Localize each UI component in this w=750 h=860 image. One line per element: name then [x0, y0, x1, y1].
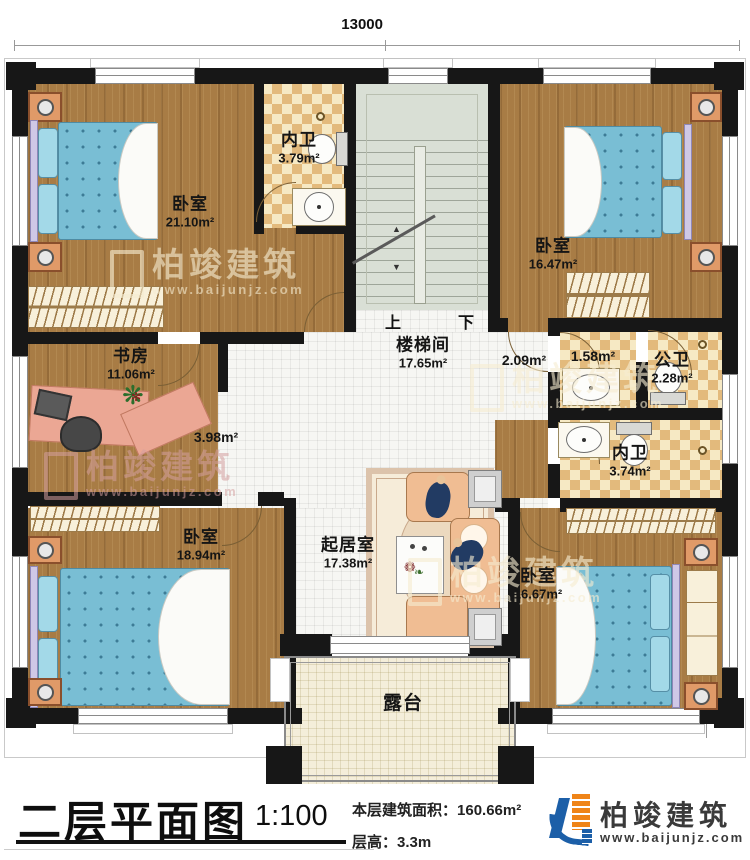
wall-segment [258, 492, 284, 506]
window [12, 556, 28, 668]
wall-segment [548, 464, 560, 498]
nightstand [28, 678, 62, 706]
bed-pillow [38, 576, 58, 632]
room-name: 书房 [107, 346, 155, 366]
floor-bedroom-br-entry [495, 420, 548, 498]
floor-height-text: 层高：3.3m [352, 831, 431, 852]
area-label-bath-vestibule: 1.58m² [571, 348, 615, 364]
plant-flower: ✻ [131, 391, 141, 403]
wardrobe [566, 272, 650, 318]
terrace-post [266, 746, 302, 784]
room-area: 3.74m² [609, 463, 650, 478]
room-name: 卧室 [514, 566, 562, 586]
stair-arrow-down: ▼ [392, 262, 401, 272]
title-underline [16, 840, 346, 844]
door-stop [698, 446, 707, 455]
window [722, 374, 738, 464]
floor-area-label: 本层建筑面积： [352, 802, 457, 819]
room-area: 17.65m² [396, 355, 450, 370]
sink-basin [566, 426, 602, 453]
bed-pillow [662, 132, 682, 180]
toilet-tank [650, 392, 686, 405]
wall-segment [488, 84, 500, 332]
bed-headboard [30, 120, 38, 242]
brand-logo-icon [548, 790, 596, 852]
wall-segment [636, 362, 648, 408]
dimension-tick [739, 40, 740, 51]
title-thin-line [4, 849, 374, 850]
room-label-bedroom-tl: 卧室 21.10m² [166, 194, 214, 229]
window-sill [383, 58, 453, 68]
wall-segment [548, 318, 722, 332]
sink-basin [304, 192, 334, 222]
room-area: 16.47m² [529, 256, 577, 271]
window [12, 356, 28, 468]
floor-height-value: 3.3m [397, 834, 431, 851]
window [552, 708, 700, 724]
room-label-bedroom-br: 卧室 16.67m² [514, 566, 562, 601]
room-label-bedroom-bl: 卧室 18.94m² [177, 527, 225, 562]
window-sill [538, 58, 656, 68]
room-name: 露台 [383, 693, 423, 715]
nightstand [690, 92, 722, 122]
room-area: 21.10m² [166, 214, 214, 229]
bed-pillow [38, 184, 58, 234]
side-table [468, 608, 502, 646]
door-stop [698, 340, 707, 349]
table-dots [410, 544, 415, 549]
room-label-stair-hall: 楼梯间 17.65m² [396, 335, 450, 370]
wall-segment [200, 332, 304, 344]
corner-pier [714, 62, 744, 90]
room-area: 2.28m² [651, 370, 692, 385]
wall-segment [218, 332, 228, 392]
room-label-bath-top: 内卫 3.79m² [278, 130, 319, 165]
window [543, 68, 651, 84]
dimension-tick [14, 40, 15, 51]
wall-segment [254, 222, 262, 234]
wall-terrace-left [280, 634, 332, 656]
window [388, 68, 448, 84]
room-label-study: 书房 11.06m² [107, 346, 155, 381]
plan-scale: 1:100 [255, 800, 328, 833]
wall-segment [548, 332, 560, 336]
room-label-terrace: 露台 [383, 693, 423, 715]
wardrobe [566, 508, 716, 534]
bed-pillow [650, 636, 670, 692]
stair-arrow-up: ▲ [392, 224, 401, 234]
bed-headboard [684, 124, 692, 240]
window [78, 708, 228, 724]
room-area: 16.67m² [514, 586, 562, 601]
wall-segment [12, 492, 222, 506]
window-sill [547, 724, 705, 734]
dimension-line-top [14, 45, 740, 46]
bed-pillow [38, 128, 58, 178]
wardrobe [30, 506, 160, 532]
sliding-door [330, 636, 470, 654]
stair-down-label: 下 [458, 309, 474, 333]
wall-segment [500, 318, 508, 332]
nightstand [28, 536, 62, 564]
door-stop [316, 112, 325, 121]
room-area: 18.94m² [177, 547, 225, 562]
window [722, 556, 738, 668]
area-label-hall-right: 2.09m² [502, 352, 546, 368]
logo-block [582, 828, 592, 844]
bed-pillow [662, 186, 682, 234]
nightstand [28, 92, 62, 122]
terrace-post [498, 746, 534, 784]
floor-area-text: 本层建筑面积：160.66m² [352, 799, 521, 820]
brand-name: 柏竣建筑 [600, 794, 732, 834]
bedside-cabinet [686, 570, 718, 676]
room-area: 11.06m² [107, 366, 155, 381]
terrace-railing-inner [290, 662, 510, 776]
floor-plan-page: 13000 13200 [0, 0, 750, 860]
dimension-tick [385, 40, 386, 51]
dimension-width-label: 13000 [308, 16, 383, 33]
corner-pier [6, 62, 36, 90]
wardrobe [28, 286, 164, 328]
logo-tower [572, 792, 590, 830]
bed-pillow [650, 574, 670, 630]
room-label-living: 起居室 17.38m² [321, 535, 375, 570]
stair-up-label: 上 [385, 309, 401, 333]
area-label-hall-left: 3.98m² [194, 429, 238, 445]
room-label-bath-public: 公卫 2.28m² [651, 350, 692, 385]
window-sill [90, 58, 200, 68]
toilet-tank [336, 132, 348, 166]
room-name: 起居室 [321, 535, 375, 555]
room-name: 卧室 [529, 236, 577, 256]
table-flowers-leaf: ❧ [414, 566, 424, 578]
room-name: 内卫 [609, 443, 650, 463]
nightstand [690, 242, 722, 272]
table-dots [422, 546, 427, 551]
room-label-bath-inner: 内卫 3.74m² [609, 443, 650, 478]
room-name: 公卫 [651, 350, 692, 370]
floor-height-label: 层高： [352, 834, 397, 851]
room-name: 卧室 [166, 194, 214, 214]
room-label-bedroom-tr: 卧室 16.47m² [529, 236, 577, 271]
bed-headboard [672, 564, 680, 708]
room-name: 内卫 [278, 130, 319, 150]
terrace-side-column [270, 658, 290, 702]
corner-pier [714, 698, 744, 728]
room-area: 17.38m² [321, 555, 375, 570]
window [722, 136, 738, 246]
terrace-side-column [510, 658, 530, 702]
window-sill [73, 724, 233, 734]
nightstand [28, 242, 62, 272]
side-table [468, 470, 502, 508]
desk-chair [60, 416, 102, 452]
brand-website: www.baijunjz.com [600, 830, 744, 845]
floor-area-value: 160.66m² [457, 802, 521, 819]
window [12, 136, 28, 246]
room-area: 3.79m² [278, 150, 319, 165]
sink-basin [572, 374, 610, 401]
nightstand [684, 538, 718, 566]
wall-segment [548, 408, 722, 420]
window [95, 68, 195, 84]
wall-segment [12, 332, 158, 344]
room-name: 卧室 [177, 527, 225, 547]
room-name: 楼梯间 [396, 335, 450, 355]
nightstand [684, 682, 718, 710]
